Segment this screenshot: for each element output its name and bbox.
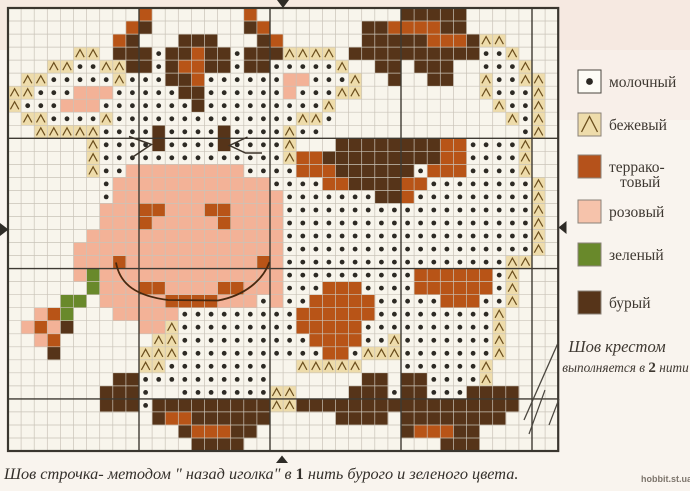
svg-text:розовый: розовый <box>609 204 664 221</box>
svg-text:выполняется в 2 нити: выполняется в 2 нити <box>562 360 689 376</box>
svg-text:бурый: бурый <box>609 295 651 312</box>
svg-text:hobbit.st.ua: hobbit.st.ua <box>641 474 690 484</box>
svg-text:бежевый: бежевый <box>609 117 667 134</box>
svg-text:молочный: молочный <box>609 74 676 91</box>
svg-text:Шов крестом: Шов крестом <box>567 337 666 356</box>
svg-text:Шов строчка- методом " назад и: Шов строчка- методом " назад иголка" в 1… <box>3 464 518 483</box>
svg-text:товый: товый <box>620 174 660 191</box>
svg-text:зеленый: зеленый <box>609 247 664 264</box>
